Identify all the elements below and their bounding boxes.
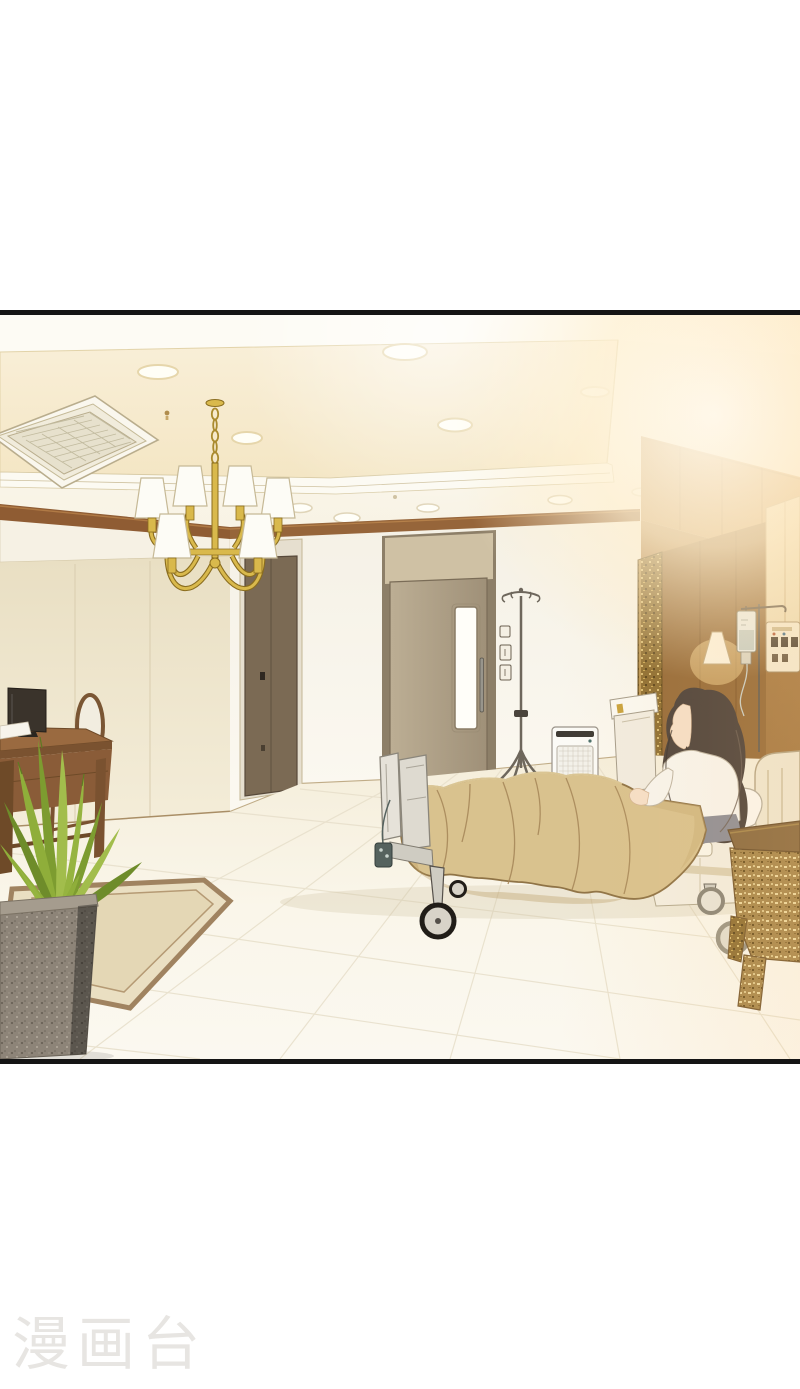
door-handle-icon xyxy=(260,672,265,680)
comic-page: 漫画台 xyxy=(0,0,800,1389)
warm-light-cast xyxy=(560,315,800,1059)
comic-panel xyxy=(0,310,800,1064)
planter xyxy=(0,894,98,1059)
interior-door xyxy=(240,539,302,800)
watermark: 漫画台 xyxy=(12,1316,207,1374)
hospital-room-illustration xyxy=(0,315,800,1059)
footboard xyxy=(375,753,433,867)
